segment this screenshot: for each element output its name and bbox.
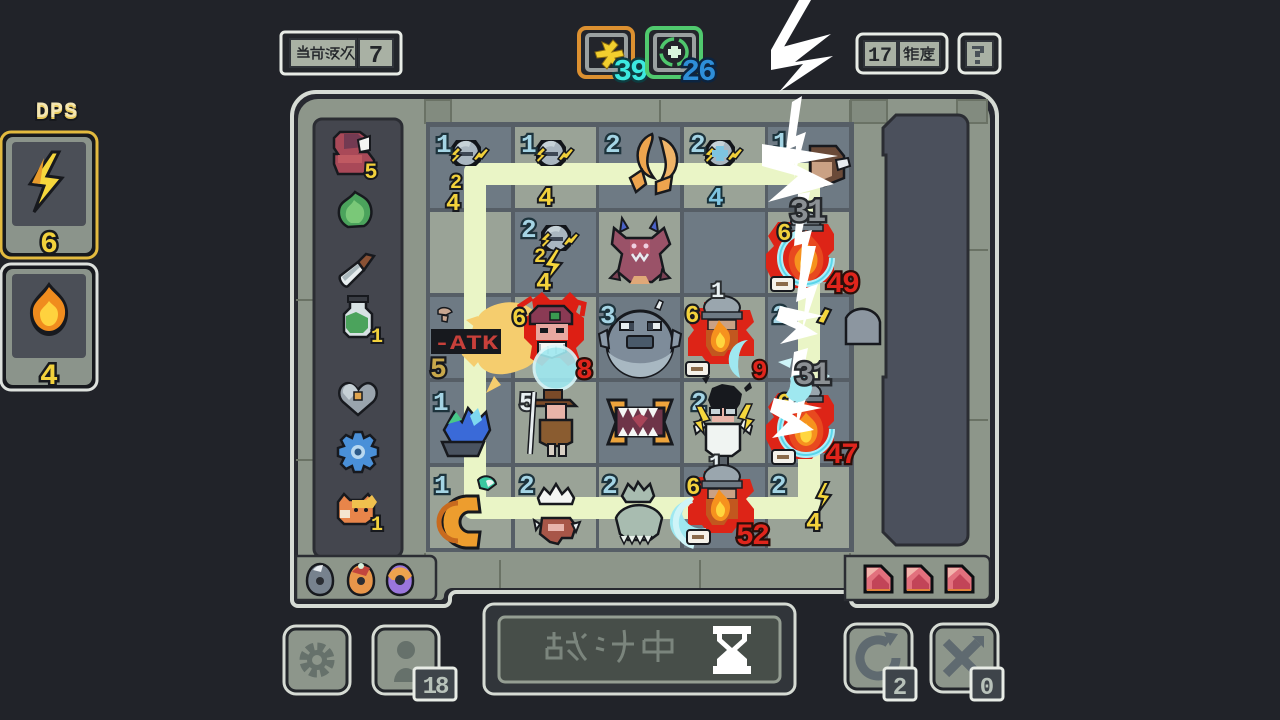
svg-text:4: 4 — [40, 360, 58, 394]
svg-text:1: 1 — [711, 279, 724, 304]
svg-text:1: 1 — [371, 326, 383, 349]
svg-text:18: 18 — [423, 674, 449, 701]
svg-text:2: 2 — [771, 471, 787, 501]
svg-text:2: 2 — [521, 215, 537, 245]
svg-text:3: 3 — [600, 301, 616, 331]
svg-text:2: 2 — [605, 130, 621, 160]
svg-text:31: 31 — [795, 357, 830, 394]
svg-text:2: 2 — [602, 471, 618, 501]
svg-text:5: 5 — [430, 355, 447, 386]
svg-text:52: 52 — [736, 520, 769, 554]
svg-text:2: 2 — [893, 675, 907, 702]
svg-text:2: 2 — [690, 130, 706, 160]
svg-text:9: 9 — [752, 356, 768, 386]
svg-text:49: 49 — [826, 268, 859, 302]
svg-text:6: 6 — [686, 475, 700, 502]
svg-text:1: 1 — [521, 130, 537, 160]
svg-text:1: 1 — [434, 471, 450, 501]
svg-text:4: 4 — [536, 268, 552, 298]
svg-text:31: 31 — [790, 194, 825, 231]
svg-text:6: 6 — [512, 306, 526, 333]
svg-text:0: 0 — [980, 675, 994, 702]
svg-text:47: 47 — [825, 439, 857, 473]
svg-text:2: 2 — [519, 471, 535, 501]
svg-text:17: 17 — [868, 45, 892, 68]
svg-text:DPS: DPS — [36, 99, 79, 124]
svg-text:6: 6 — [685, 303, 699, 330]
svg-text:4: 4 — [446, 191, 460, 218]
svg-text:-ATK: -ATK — [434, 333, 498, 356]
svg-text:39: 39 — [613, 55, 647, 90]
svg-text:4: 4 — [806, 508, 822, 538]
svg-text:5: 5 — [364, 160, 377, 185]
svg-text:8: 8 — [576, 356, 593, 387]
svg-text:1: 1 — [436, 130, 452, 160]
svg-text:6: 6 — [40, 228, 58, 262]
svg-text:4: 4 — [538, 183, 554, 213]
svg-text:1: 1 — [433, 388, 449, 418]
svg-text:1: 1 — [371, 514, 383, 537]
svg-text:4: 4 — [708, 183, 724, 213]
svg-text:7: 7 — [369, 43, 383, 70]
svg-text:26: 26 — [681, 55, 715, 90]
